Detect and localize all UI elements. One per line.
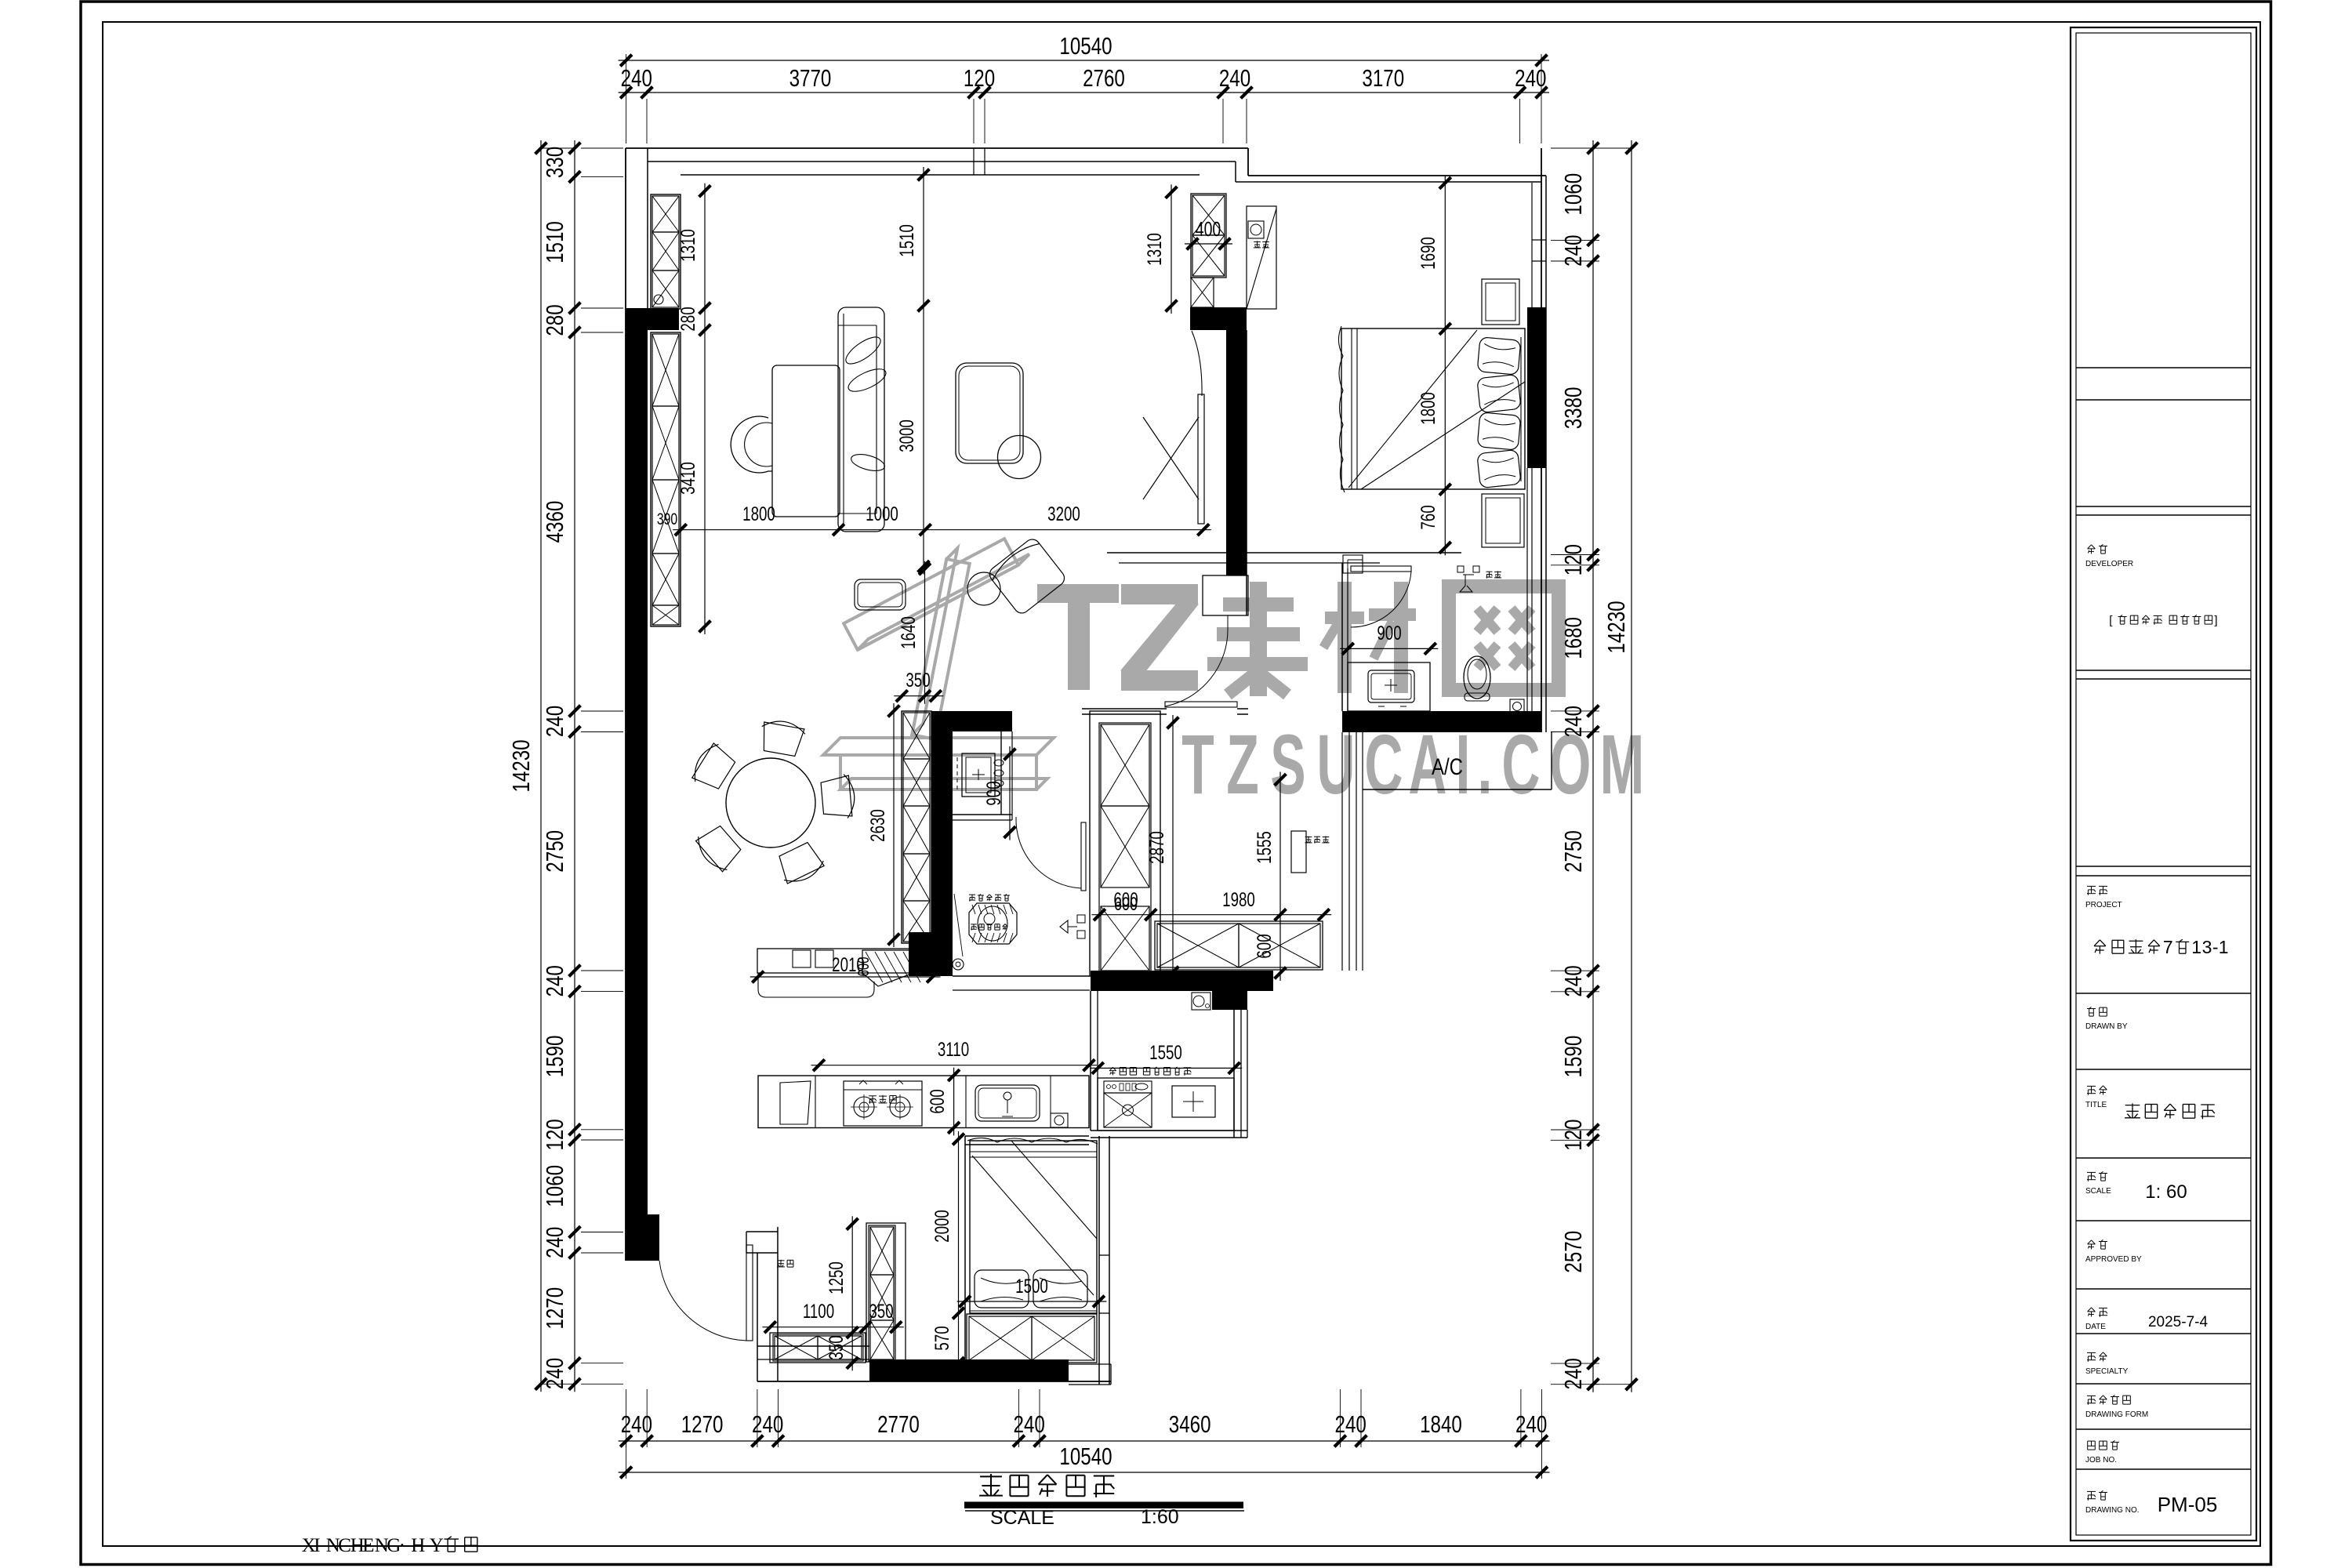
svg-text:1980: 1980 (1222, 888, 1255, 910)
svg-text:240: 240 (1515, 64, 1546, 92)
svg-text:120: 120 (1559, 1120, 1587, 1151)
svg-text:240: 240 (541, 706, 568, 737)
svg-text:1000: 1000 (866, 503, 898, 524)
svg-text:240: 240 (1559, 1358, 1587, 1389)
svg-text:350: 350 (906, 669, 930, 691)
svg-text:3000: 3000 (895, 419, 917, 452)
svg-text:I: I (314, 1535, 320, 1556)
svg-text:4360: 4360 (541, 501, 568, 543)
svg-text:240: 240 (1515, 1410, 1547, 1438)
svg-text:2750: 2750 (1559, 830, 1587, 873)
svg-text:·: · (399, 1535, 405, 1556)
svg-text:600: 600 (855, 956, 873, 976)
svg-text:1060: 1060 (541, 1165, 568, 1207)
svg-text:240: 240 (1014, 1410, 1045, 1438)
svg-text:240: 240 (621, 64, 652, 92)
svg-text:1550: 1550 (1149, 1041, 1182, 1063)
svg-text:280: 280 (677, 307, 699, 331)
svg-text:600: 600 (1253, 934, 1275, 958)
svg-text:3110: 3110 (938, 1038, 969, 1060)
svg-text:1640: 1640 (897, 616, 919, 649)
svg-text:SCALE: SCALE (990, 1507, 1054, 1529)
svg-text:2870: 2870 (1145, 831, 1167, 864)
svg-text:240: 240 (1559, 965, 1587, 996)
svg-text:3380: 3380 (1559, 387, 1587, 430)
svg-text:2760: 2760 (1083, 64, 1125, 92)
svg-text:120: 120 (541, 1119, 568, 1150)
svg-text:240: 240 (1335, 1410, 1367, 1438)
svg-text:10540: 10540 (1059, 1443, 1112, 1470)
svg-text:1270: 1270 (541, 1287, 568, 1330)
svg-text:1510: 1510 (895, 224, 917, 257)
svg-text:390: 390 (657, 510, 677, 528)
svg-text:3170: 3170 (1362, 64, 1404, 92)
svg-text:600: 600 (1113, 888, 1138, 910)
svg-text:SCALE: SCALE (2085, 1187, 2111, 1196)
svg-text:1510: 1510 (541, 221, 568, 263)
svg-text:1680: 1680 (1559, 617, 1587, 659)
svg-text:570: 570 (931, 1326, 953, 1350)
svg-text:240: 240 (541, 1358, 568, 1389)
svg-text:1060: 1060 (1559, 173, 1587, 216)
svg-text:240: 240 (621, 1410, 652, 1438)
svg-text:1500: 1500 (1015, 1275, 1048, 1297)
svg-text:240: 240 (541, 965, 568, 996)
svg-text:330: 330 (541, 147, 568, 178)
svg-text:M: M (1600, 717, 1645, 812)
svg-text:2570: 2570 (1559, 1231, 1587, 1273)
svg-text:1: 1 (2219, 937, 2229, 957)
svg-text:3410: 3410 (677, 462, 699, 495)
svg-text:Z: Z (1226, 717, 1259, 812)
svg-text:600: 600 (926, 1089, 948, 1113)
svg-text:350: 350 (825, 1335, 847, 1359)
svg-text:1270: 1270 (681, 1410, 724, 1438)
svg-text:DATE: DATE (2085, 1323, 2106, 1331)
svg-text:PROJECT: PROJECT (2085, 901, 2122, 909)
svg-text:1555: 1555 (1253, 831, 1275, 864)
svg-text:2750: 2750 (541, 830, 568, 873)
svg-text:1: 1 (2191, 937, 2201, 957)
svg-text:7: 7 (2163, 937, 2173, 957)
svg-text:]: ] (2214, 614, 2217, 627)
svg-text:3460: 3460 (1169, 1410, 1211, 1438)
svg-text:3200: 3200 (1047, 503, 1080, 524)
svg-text:SPECIALTY: SPECIALTY (2085, 1367, 2129, 1376)
svg-text:PM-05: PM-05 (2158, 1493, 2218, 1516)
svg-text:S: S (1270, 717, 1305, 812)
svg-text:-: - (2212, 937, 2219, 957)
svg-text:240: 240 (1219, 64, 1250, 92)
svg-text:1310: 1310 (1143, 233, 1165, 266)
svg-text:2630: 2630 (866, 809, 888, 842)
svg-text:1690: 1690 (1417, 237, 1439, 270)
svg-text:350: 350 (869, 1300, 893, 1322)
svg-text:1590: 1590 (1559, 1036, 1587, 1078)
svg-text:2770: 2770 (877, 1410, 920, 1438)
svg-text:400: 400 (1196, 217, 1221, 240)
svg-text:1800: 1800 (1417, 392, 1439, 425)
svg-text:240: 240 (541, 1227, 568, 1258)
svg-text:Y: Y (430, 1535, 444, 1556)
svg-text:TITLE: TITLE (2085, 1101, 2107, 1109)
svg-text:JOB NO.: JOB NO. (2085, 1456, 2117, 1465)
svg-text:DRAWN BY: DRAWN BY (2085, 1022, 2128, 1031)
svg-text:240: 240 (1559, 235, 1587, 267)
svg-text:T: T (1181, 717, 1214, 812)
svg-text:DEVELOPER: DEVELOPER (2085, 560, 2133, 568)
svg-text:900: 900 (982, 781, 1004, 805)
svg-text:H: H (411, 1535, 425, 1556)
svg-text:1310: 1310 (677, 229, 699, 262)
svg-text:3770: 3770 (789, 64, 832, 92)
svg-text:DRAWING NO.: DRAWING NO. (2085, 1506, 2140, 1515)
svg-text:240: 240 (752, 1410, 783, 1438)
svg-text:10540: 10540 (1059, 32, 1112, 60)
svg-text:14230: 14230 (507, 739, 535, 792)
svg-text:C: C (338, 1535, 351, 1556)
svg-text:2025-7-4: 2025-7-4 (2148, 1314, 2208, 1330)
svg-text:760: 760 (1417, 505, 1439, 529)
svg-text:1: 60: 1: 60 (2145, 1181, 2187, 1203)
svg-text:280: 280 (541, 304, 568, 336)
svg-text:APPROVED BY: APPROVED BY (2085, 1255, 2142, 1264)
svg-text:E: E (362, 1535, 374, 1556)
svg-text:3: 3 (2202, 937, 2212, 957)
svg-text:1:60: 1:60 (1141, 1506, 1179, 1528)
svg-text:240: 240 (1559, 706, 1587, 737)
svg-text:900: 900 (1377, 622, 1401, 644)
svg-text:120: 120 (1559, 544, 1587, 575)
svg-text:120: 120 (964, 64, 995, 92)
svg-text:14230: 14230 (1602, 601, 1630, 653)
svg-text:1800: 1800 (742, 503, 775, 524)
svg-text:1590: 1590 (541, 1036, 568, 1078)
svg-text:DRAWING FORM: DRAWING FORM (2085, 1410, 2148, 1419)
svg-text:1100: 1100 (803, 1300, 834, 1322)
svg-text:1250: 1250 (825, 1261, 847, 1294)
svg-text:2000: 2000 (931, 1210, 953, 1243)
svg-text:1840: 1840 (1420, 1410, 1462, 1438)
svg-text:A/C: A/C (1432, 753, 1463, 779)
